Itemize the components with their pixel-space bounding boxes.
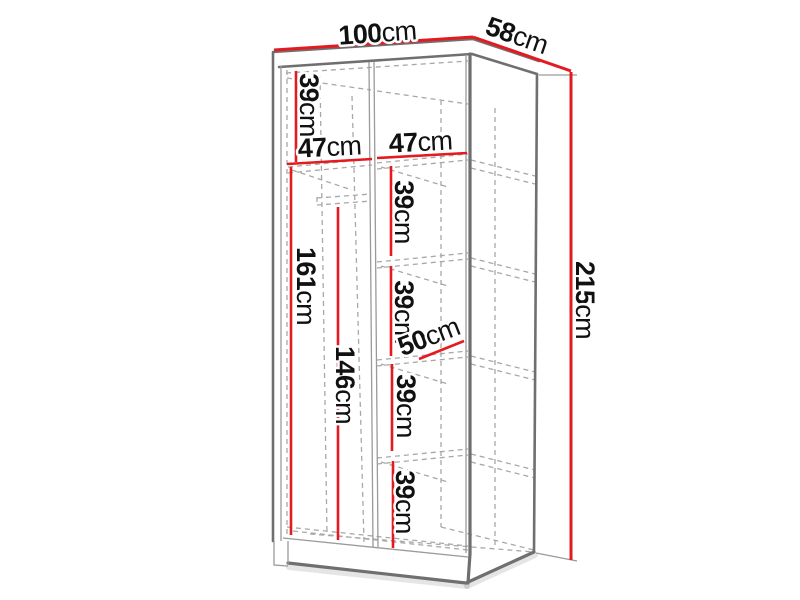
side-bottom-edge [466,552,534,583]
divider-back-edge [352,96,364,543]
center-divider [369,62,378,547]
dim-label-shelf-gap-1: 39cm [389,180,419,244]
side-bottom-shadow [467,555,535,586]
dim-label-overall-width: 100cm [337,15,417,50]
wardrobe-dimension-diagram: 100cm 58cm 215cm 39cm 47cm 47cm 161cm 14… [0,0,800,600]
dim-label-right-section-width: 47cm [388,125,453,158]
front-right-edge [468,54,470,583]
hanging-rail-edges [317,194,371,206]
dim-label-shelf-gap-3: 39cm [391,374,421,438]
diagram-svg: 100cm 58cm 215cm 39cm 47cm 47cm 161cm 14… [0,0,800,600]
dim-label-left-section-height: 161cm [291,247,321,325]
front-top-edge [279,54,472,67]
left-foot [274,541,288,566]
plinth-bottom-edge [288,563,466,583]
top-panel-underside-edge [286,61,468,73]
base-shadow [289,555,535,586]
plinth-shadow [289,567,467,586]
dim-label-shelf-gap-4: 39cm [390,470,420,534]
side-back-edge [534,74,537,552]
dim-label-top-section-height: 39cm [294,73,324,137]
dim-label-overall-height: 215cm [570,261,600,339]
dim-label-hanging-rail-height: 146cm [330,346,360,424]
dim-label-left-section-width: 47cm [297,130,362,163]
